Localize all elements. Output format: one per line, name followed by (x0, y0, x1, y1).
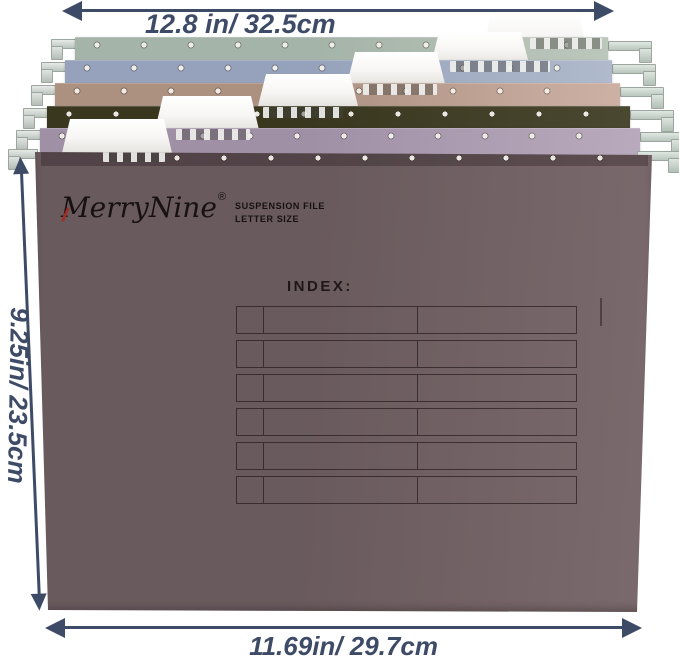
index-table (236, 306, 577, 510)
index-table-cell (237, 341, 264, 367)
index-table-cell (264, 375, 418, 401)
brand-subtitle-line2: LETTER SIZE (235, 213, 325, 226)
brand-accent-mark (61, 207, 70, 222)
index-table-cell (237, 307, 264, 333)
folder-front-mauve: MerryNine ® SUSPENSION FILE LETTER SIZE … (35, 150, 652, 612)
brand-subtitle-line1: SUSPENSION FILE (235, 200, 325, 213)
index-label: INDEX: (287, 278, 353, 295)
index-table-row (236, 408, 577, 436)
index-table-row (236, 476, 577, 504)
rivet-dots (171, 153, 622, 164)
fold-crease-line (600, 298, 602, 326)
index-table-row (236, 442, 577, 470)
arrowhead-left-icon (62, 1, 82, 21)
index-table-cell (418, 477, 576, 503)
hanger-hook-right-icon (608, 39, 652, 63)
index-table-cell (237, 477, 264, 503)
registered-trademark-icon: ® (218, 191, 226, 203)
index-table-cell (418, 375, 576, 401)
index-table-row (236, 340, 577, 368)
brand-logo: MerryNine ® SUSPENSION FILE LETTER SIZE (61, 194, 325, 226)
index-table-cell (418, 409, 576, 435)
index-tab (155, 96, 259, 130)
index-tab (347, 52, 445, 84)
index-table-cell (237, 375, 264, 401)
index-table-cell (418, 341, 576, 367)
index-table-cell (264, 477, 418, 503)
brand-name: MerryNine (61, 194, 217, 222)
index-table-cell (237, 443, 264, 469)
tab-slot-rail (176, 129, 250, 140)
folder-body: MerryNine ® SUSPENSION FILE LETTER SIZE … (35, 150, 652, 612)
tab-slot-rail (363, 84, 437, 95)
index-table-cell (264, 307, 418, 333)
dimension-label-left: 9.25in/ 23.5cm (5, 283, 36, 507)
index-table-cell (418, 443, 576, 469)
dimension-line (63, 626, 624, 629)
tab-slot-rail (450, 61, 550, 72)
dimension-label-bottom: 11.69in/ 29.7cm (45, 631, 642, 659)
dimension-label-top: 12.8 in/ 32.5cm (145, 9, 336, 40)
index-table-cell (237, 409, 264, 435)
tab-slot-rail (103, 151, 165, 162)
index-table-cell (264, 409, 418, 435)
product-dimension-diagram: MerryNine ® SUSPENSION FILE LETTER SIZE … (0, 0, 679, 659)
index-table-cell (418, 307, 576, 333)
index-table-row (236, 306, 577, 334)
tab-slot-rail (530, 38, 602, 49)
index-tab (258, 74, 358, 106)
brand-subtitle: SUSPENSION FILE LETTER SIZE (235, 200, 325, 226)
index-tab (62, 119, 172, 153)
index-table-cell (264, 443, 418, 469)
index-table-row (236, 374, 577, 402)
arrowhead-right-icon (594, 1, 614, 21)
tab-slot-rail (263, 107, 343, 118)
index-table-cell (264, 341, 418, 367)
